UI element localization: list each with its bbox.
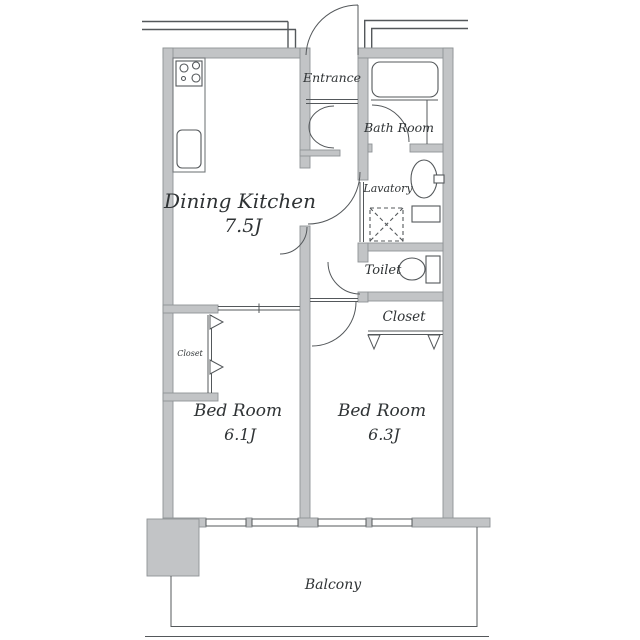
floorplan-page: Dining Kitchen 7.5J Entrance Bath Room L… — [0, 0, 640, 640]
wall-top-right — [358, 48, 453, 58]
bathtub — [372, 62, 438, 97]
bedroom-left-label: Bed Room — [193, 401, 282, 421]
bath-room-label: Bath Room — [363, 120, 434, 135]
wall-top-left — [163, 48, 306, 58]
stove-burner-2 — [193, 62, 200, 69]
closet-left-label: Closet — [177, 349, 203, 358]
lavatory-sink — [411, 160, 437, 198]
bedroom-right-threshold — [310, 299, 358, 302]
kitchen-sink — [177, 130, 201, 168]
corridor-boundary-lines — [142, 21, 468, 49]
entrance-door-arc — [306, 5, 358, 55]
window-bedroom-left-1 — [206, 519, 246, 526]
wall-bath-bottom-stub — [368, 144, 372, 152]
bedroom-right-size: 6.3J — [368, 425, 401, 444]
wall-entrance-closet-bottom — [300, 150, 340, 156]
closet-left-triangle-bottom — [210, 360, 223, 374]
entrance-step-line — [306, 100, 358, 104]
wall-bottom-b — [246, 518, 252, 527]
wall-dk-bedroom — [163, 305, 218, 313]
lavatory-label: Lavatory — [362, 182, 413, 195]
dk-partition-line — [218, 304, 300, 314]
toilet-bowl — [399, 258, 425, 280]
stove-burner-3 — [192, 74, 200, 82]
stove-burner-1 — [180, 64, 188, 72]
window-bedroom-right-2 — [372, 519, 412, 526]
entrance-closet-door-arc-bottom — [309, 127, 334, 148]
closet-right-label: Closet — [382, 309, 426, 325]
entrance-closet-door-arc-top — [309, 106, 334, 127]
wall-closet-left-bottom — [163, 393, 218, 401]
bedroom-right-door-arc — [312, 302, 356, 346]
lavatory-faucet — [434, 175, 444, 183]
window-bedroom-right-1 — [318, 519, 366, 526]
toilet-door-arc — [328, 262, 360, 294]
window-bedroom-left-2 — [252, 519, 298, 526]
entrance-label: Entrance — [302, 70, 361, 85]
wall-toilet-bottom — [368, 292, 443, 301]
bedroom-right-label: Bed Room — [337, 401, 426, 421]
wall-corridor-right-b — [358, 243, 368, 262]
balcony-label: Balcony — [304, 577, 362, 593]
wall-bath-bottom — [410, 144, 443, 152]
wall-lavatory-bottom — [368, 243, 443, 251]
wall-center-lower — [300, 226, 310, 520]
toilet-tank — [426, 256, 440, 283]
bedroom-left-size: 6.1J — [224, 425, 257, 444]
wall-bottom-c — [298, 518, 318, 527]
closet-left-triangle-top — [210, 315, 223, 329]
dining-kitchen-label: Dining Kitchen — [163, 189, 316, 213]
toilet-label: Toilet — [365, 263, 402, 278]
wall-bottom-d — [366, 518, 372, 527]
balcony-utility-block — [147, 519, 199, 576]
closet-right-triangle-right — [428, 335, 440, 349]
dining-kitchen-size: 7.5J — [224, 215, 263, 237]
wall-bottom-e — [412, 518, 490, 527]
water-heater — [412, 206, 440, 222]
wall-left — [163, 48, 173, 520]
floorplan-drawing: Dining Kitchen 7.5J Entrance Bath Room L… — [0, 0, 640, 640]
stove-knob — [182, 77, 186, 81]
closet-right-triangle-left — [368, 335, 380, 349]
washing-machine-pan — [370, 208, 403, 241]
wall-right — [443, 48, 453, 520]
closet-right-slider — [368, 331, 443, 335]
